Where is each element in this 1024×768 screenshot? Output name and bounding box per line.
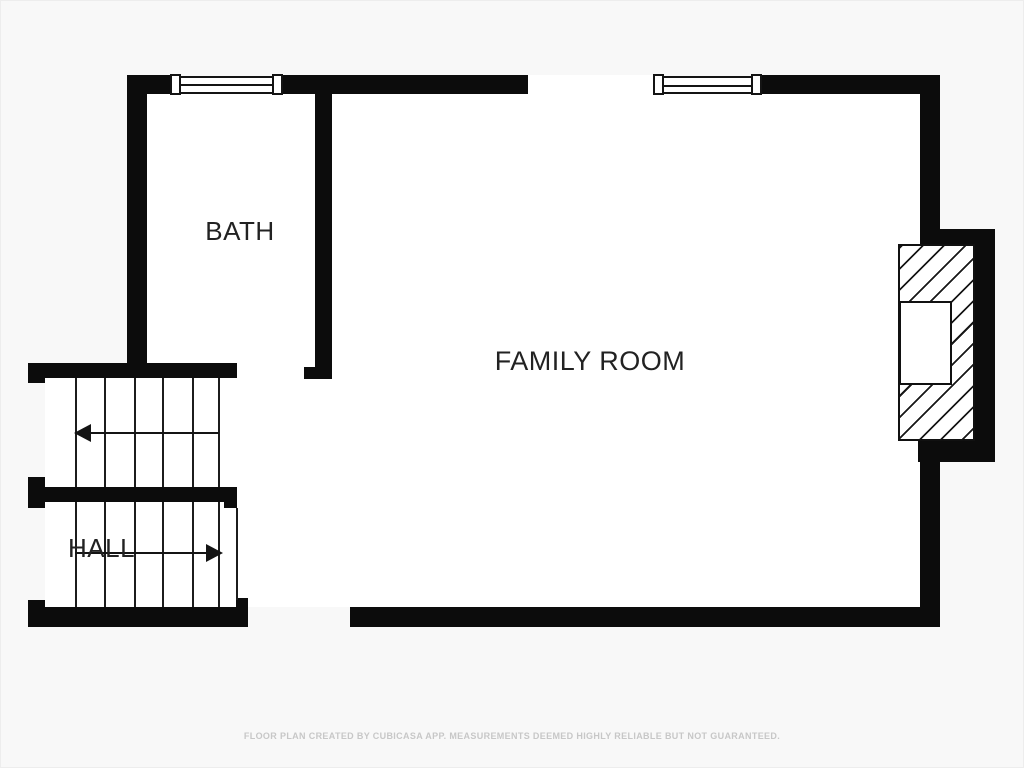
window-2-cap-left xyxy=(653,74,664,95)
stair-arrow-right-icon xyxy=(206,544,223,562)
upper-stair-arrow-line xyxy=(88,432,219,434)
window-1-cap-left xyxy=(170,74,181,95)
wall-bath-right xyxy=(315,94,332,379)
stairs-left-stub-bottom xyxy=(28,600,45,627)
wall-right-outer xyxy=(975,229,995,462)
wall-top-middle-segment xyxy=(282,75,528,94)
room-label-family-room: FAMILY ROOM xyxy=(465,348,715,375)
window-2-midline xyxy=(663,85,754,87)
stairs-left-stub-top xyxy=(28,363,45,383)
bath-door-jamb xyxy=(304,367,332,379)
window-1-midline xyxy=(180,84,274,86)
fireplace-jog-bottom xyxy=(918,441,995,462)
window-1-cap-right xyxy=(272,74,283,95)
stairs-middle-right-jamb xyxy=(224,487,237,508)
floor-plan-canvas: BATH FAMILY ROOM HALL FLOOR PLAN CREATED… xyxy=(0,0,1024,768)
top-wall-opening-fill xyxy=(528,75,655,94)
room-label-hall: HALL xyxy=(68,535,135,561)
wall-bath-left xyxy=(127,75,147,363)
wall-stairs-middle xyxy=(45,487,233,502)
stair-tread-line xyxy=(192,502,194,607)
hall-right-boundary-line xyxy=(236,508,238,600)
wall-family-bottom xyxy=(350,607,940,627)
footer-disclaimer: FLOOR PLAN CREATED BY CUBICASA APP. MEAS… xyxy=(0,731,1024,741)
wall-right-upper xyxy=(920,94,940,229)
stair-tread-line xyxy=(162,502,164,607)
stairs-left-stub-middle xyxy=(28,477,45,508)
wall-top-right-segment xyxy=(762,75,940,94)
wall-right-lower xyxy=(920,462,940,627)
corridor-fill xyxy=(237,363,332,607)
stair-arrow-left-icon xyxy=(74,424,91,442)
window-2-cap-right xyxy=(751,74,762,95)
fireplace-firebox xyxy=(899,301,952,385)
room-label-bath: BATH xyxy=(165,218,315,244)
wall-stairs-top xyxy=(45,363,237,378)
wall-hall-bottom xyxy=(45,607,248,627)
